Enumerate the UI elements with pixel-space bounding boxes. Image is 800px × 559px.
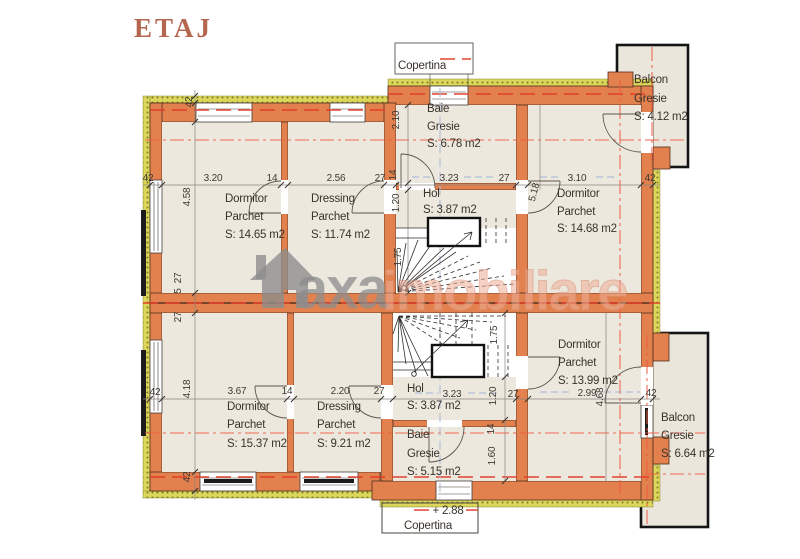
- room-label: Parchet: [557, 206, 596, 218]
- room-label: Parchet: [227, 419, 266, 431]
- room-label: Dressing: [311, 193, 355, 205]
- room-label: S: 5.15 m2: [407, 466, 461, 478]
- dim: 4.18: [182, 379, 193, 398]
- room-label: Hol: [423, 188, 440, 200]
- room-label: Dormitor: [557, 188, 600, 200]
- room-label: Dormitor: [558, 339, 601, 351]
- room-label: Baie: [427, 103, 449, 115]
- room-label: S: 6.78 m2: [427, 138, 481, 150]
- wall-balcony-chunk: [653, 333, 669, 361]
- dim: 1.20: [391, 193, 402, 212]
- room-label: S: 3.87 m2: [423, 204, 477, 216]
- dim: 42: [184, 96, 195, 107]
- room-label: Gresie: [634, 93, 667, 105]
- copertina-bottom-group: + 2.88 Copertina: [382, 503, 478, 533]
- room-label: S: 3.87 m2: [407, 400, 461, 412]
- room-label: Balcon: [634, 74, 668, 86]
- floor-plan-drawing: Copertina + 2.88 Copertina Dormitor Parc…: [0, 0, 800, 559]
- room-label: S: 14.68 m2: [557, 223, 617, 235]
- floor-plan-page: Copertina + 2.88 Copertina Dormitor Parc…: [0, 0, 800, 559]
- level-marker: + 2.88: [432, 505, 463, 517]
- dim: 4.58: [182, 187, 193, 206]
- wall-facade-bottom-right: [372, 481, 653, 500]
- room-label: Dressing: [317, 401, 361, 413]
- room-label: Hol: [407, 383, 424, 395]
- room-label: Baie: [407, 429, 429, 441]
- dim: 14: [486, 423, 497, 434]
- room-label: Parchet: [317, 419, 356, 431]
- dim: 27: [508, 389, 519, 400]
- watermark-brand-suffix: imobiliare: [382, 259, 627, 322]
- dim: 27: [173, 311, 184, 322]
- room-label: Parchet: [225, 211, 264, 223]
- watermark: axa imobiliare: [250, 248, 627, 322]
- dim: 14: [282, 386, 293, 397]
- room-label: S: 4.12 m2: [634, 111, 688, 123]
- dim: 14: [388, 169, 399, 180]
- copertina-top-label: Copertina: [398, 60, 447, 72]
- room-label: Gresie: [661, 430, 694, 442]
- dim: 3.67: [228, 386, 247, 397]
- room-label: S: 9.21 m2: [317, 438, 371, 450]
- dim: 27: [375, 173, 386, 184]
- room-label: Gresie: [427, 121, 460, 133]
- room-label: Dormitor: [227, 401, 270, 413]
- dim: 1.20: [488, 386, 499, 405]
- room-label: S: 6.64 m2: [661, 448, 715, 460]
- stair-void: [432, 345, 484, 377]
- watermark-brand: axa: [296, 256, 390, 321]
- dim: 2.56: [327, 173, 346, 184]
- room-label: Dormitor: [225, 193, 268, 205]
- copertina-bottom-label: Copertina: [404, 520, 453, 532]
- dim: 1.75: [489, 325, 500, 344]
- dim: 1.60: [487, 446, 498, 465]
- room-label: Balcon: [661, 412, 695, 424]
- dim: 27: [173, 272, 184, 283]
- dim: 42: [150, 387, 161, 398]
- room-label: Gresie: [407, 448, 440, 460]
- dim: 27: [374, 386, 385, 397]
- page-title: ETAJ: [134, 13, 213, 43]
- dim: 3.10: [568, 173, 587, 184]
- room-label: S: 14.65 m2: [225, 229, 285, 241]
- dim: 27: [499, 173, 510, 184]
- dim: 2.20: [331, 386, 350, 397]
- dim: 42: [646, 388, 657, 399]
- room-label: S: 15.37 m2: [227, 438, 287, 450]
- room-label: Parchet: [311, 211, 350, 223]
- room-label: Parchet: [558, 357, 597, 369]
- dim: 2.10: [391, 110, 402, 129]
- dim: 3.20: [204, 173, 223, 184]
- dim: 14: [267, 173, 278, 184]
- room-label: S: 13.99 m2: [558, 375, 618, 387]
- dim: 3.23: [440, 173, 459, 184]
- dim: 42: [143, 173, 154, 184]
- dim: 42: [182, 471, 193, 482]
- dim: 4.68: [595, 387, 606, 406]
- wall-balcony-chunk: [653, 147, 670, 169]
- dim: 5: [173, 288, 184, 294]
- room-label: S: 11.74 m2: [311, 229, 370, 241]
- stair-void: [428, 218, 480, 246]
- dim: 3.23: [443, 389, 462, 400]
- dim: 42: [645, 173, 656, 184]
